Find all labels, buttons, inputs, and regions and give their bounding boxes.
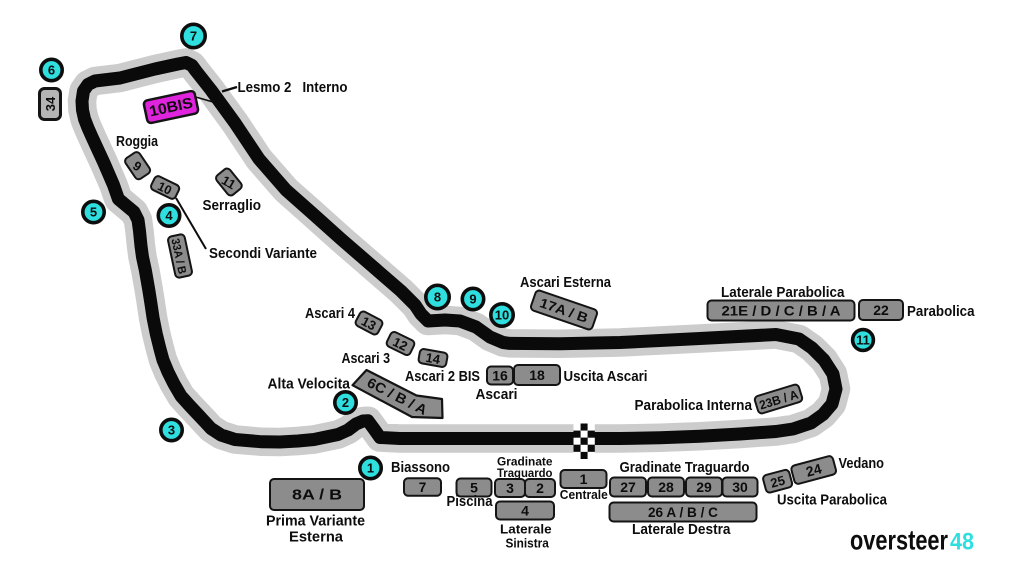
svg-text:21E / D / C / B / A: 21E / D / C / B / A bbox=[722, 303, 841, 319]
svg-text:8A / B: 8A / B bbox=[292, 487, 342, 504]
svg-text:Centrale: Centrale bbox=[560, 487, 608, 502]
svg-text:Parabolica Interna: Parabolica Interna bbox=[635, 397, 753, 414]
svg-text:Ascari 3: Ascari 3 bbox=[342, 350, 391, 367]
svg-text:16: 16 bbox=[492, 368, 508, 384]
svg-text:2: 2 bbox=[536, 480, 544, 496]
svg-text:Serraglio: Serraglio bbox=[203, 197, 262, 214]
svg-text:34: 34 bbox=[43, 96, 58, 111]
svg-text:Secondi Variante: Secondi Variante bbox=[209, 245, 317, 262]
svg-text:oversteer: oversteer bbox=[850, 525, 948, 556]
svg-text:Ascari 4: Ascari 4 bbox=[305, 305, 356, 322]
svg-text:29: 29 bbox=[696, 479, 712, 495]
svg-text:7: 7 bbox=[419, 480, 427, 495]
svg-text:2: 2 bbox=[342, 395, 349, 410]
svg-text:3: 3 bbox=[506, 480, 514, 496]
svg-text:Lesmo 2 Interno: Lesmo 2 Interno bbox=[238, 79, 348, 96]
svg-text:Parabolica: Parabolica bbox=[907, 303, 975, 320]
svg-text:10: 10 bbox=[495, 308, 509, 323]
svg-text:Roggia: Roggia bbox=[116, 133, 159, 150]
svg-text:Traguardo: Traguardo bbox=[497, 466, 553, 480]
svg-text:Uscita Parabolica: Uscita Parabolica bbox=[777, 492, 888, 509]
svg-text:Prima Variante: Prima Variante bbox=[266, 513, 365, 530]
svg-text:1: 1 bbox=[367, 461, 374, 476]
svg-text:Laterale: Laterale bbox=[500, 522, 552, 537]
svg-text:Sinistra: Sinistra bbox=[506, 536, 550, 551]
svg-text:4: 4 bbox=[165, 208, 173, 223]
svg-text:26 A / B / C: 26 A / B / C bbox=[648, 504, 718, 520]
svg-text:Gradinate Traguardo: Gradinate Traguardo bbox=[620, 459, 750, 476]
svg-text:Laterale Parabolica: Laterale Parabolica bbox=[721, 284, 845, 301]
svg-text:Ascari 2 BIS: Ascari 2 BIS bbox=[405, 368, 480, 385]
svg-text:9: 9 bbox=[469, 292, 476, 307]
svg-text:Ascari: Ascari bbox=[476, 386, 518, 403]
svg-text:Piscina: Piscina bbox=[447, 493, 494, 510]
svg-text:28: 28 bbox=[658, 479, 674, 495]
svg-text:Uscita Ascari: Uscita Ascari bbox=[564, 368, 648, 385]
svg-text:5: 5 bbox=[90, 205, 97, 220]
svg-text:3: 3 bbox=[168, 423, 175, 438]
svg-text:48: 48 bbox=[950, 529, 974, 556]
svg-text:Esterna: Esterna bbox=[289, 529, 344, 546]
svg-text:22: 22 bbox=[873, 302, 889, 318]
svg-text:1: 1 bbox=[580, 471, 588, 487]
svg-text:Ascari Esterna: Ascari Esterna bbox=[520, 274, 612, 291]
svg-text:18: 18 bbox=[529, 367, 545, 383]
svg-text:6: 6 bbox=[48, 63, 55, 78]
svg-text:11: 11 bbox=[856, 333, 870, 348]
svg-text:Vedano: Vedano bbox=[839, 455, 885, 472]
svg-text:7: 7 bbox=[190, 29, 197, 44]
svg-text:8: 8 bbox=[434, 290, 441, 305]
svg-text:4: 4 bbox=[521, 503, 529, 519]
svg-text:27: 27 bbox=[620, 479, 636, 495]
svg-text:Biassono: Biassono bbox=[391, 459, 450, 476]
svg-text:Laterale Destra: Laterale Destra bbox=[632, 521, 731, 538]
svg-text:30: 30 bbox=[732, 479, 748, 495]
svg-text:Alta Velocita: Alta Velocita bbox=[268, 376, 351, 393]
